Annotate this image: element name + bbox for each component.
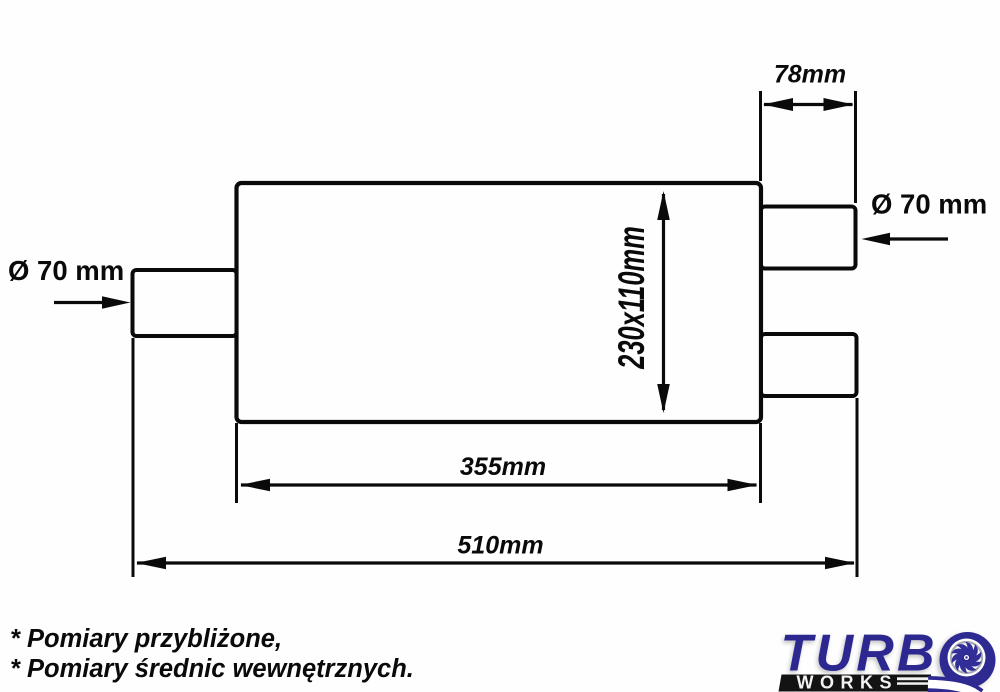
svg-text:Ø 70 mm: Ø 70 mm [8,255,124,286]
svg-text:78mm: 78mm [774,61,846,89]
svg-text:* Pomiary przybliżone,: * Pomiary przybliżone, [10,625,282,653]
svg-text:WORKS: WORKS [797,673,899,692]
svg-text:* Pomiary średnic wewnętrznych: * Pomiary średnic wewnętrznych. [10,655,414,683]
svg-text:510mm: 510mm [457,532,543,560]
svg-text:230x110mm: 230x110mm [610,226,652,369]
svg-text:355mm: 355mm [460,453,546,481]
svg-text:Ø 70 mm: Ø 70 mm [871,189,987,220]
